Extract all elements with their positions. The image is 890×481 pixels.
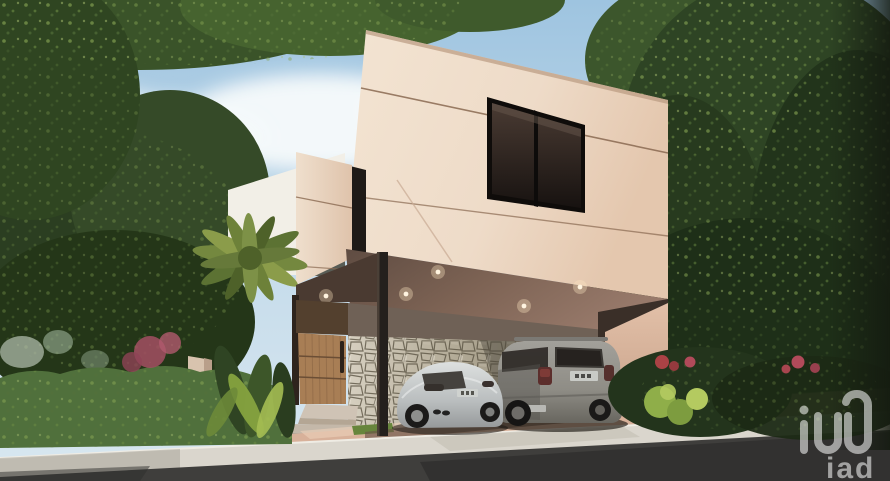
downlight: [573, 280, 587, 294]
silver-plant: [81, 350, 109, 370]
suv-taillight-glow: [540, 369, 550, 377]
coupe-wheel-rim: [411, 410, 423, 422]
window-mullion: [534, 110, 538, 207]
palm-crown: [238, 246, 262, 270]
door-handle: [340, 341, 344, 373]
downlight: [399, 287, 413, 301]
downlight: [319, 289, 333, 303]
suv-wheel-rim: [512, 407, 525, 420]
downlight: [517, 299, 531, 313]
plate-characters-illegible: [461, 391, 474, 395]
suv-wheel-rim: [595, 405, 605, 415]
silver-plant: [43, 330, 73, 354]
right-edge-shadow: [830, 0, 890, 450]
steel-column: [377, 252, 388, 436]
rendered-photo: iad: [0, 0, 890, 481]
coupe-exhaust: [433, 410, 441, 415]
coupe-taillight: [424, 384, 444, 391]
entry-door-assembly: [292, 295, 348, 405]
column-highlight: [377, 252, 380, 436]
downlight: [431, 265, 445, 279]
scene-canvas: iad: [0, 0, 890, 481]
watermark-text: iad: [826, 452, 875, 481]
plate-characters-illegible: [575, 374, 591, 378]
coupe-exhaust: [442, 411, 450, 416]
door-transom-wood-dark: [296, 300, 348, 335]
step-top: [300, 404, 358, 420]
coupe-taillight: [482, 381, 494, 387]
coupe-wheel-rim: [486, 408, 495, 417]
silver-plant: [0, 336, 44, 368]
suv-roof-rails: [514, 337, 608, 341]
suv-rear-window: [556, 348, 603, 367]
suv-grey: [492, 337, 628, 432]
slot-window: [350, 166, 366, 262]
